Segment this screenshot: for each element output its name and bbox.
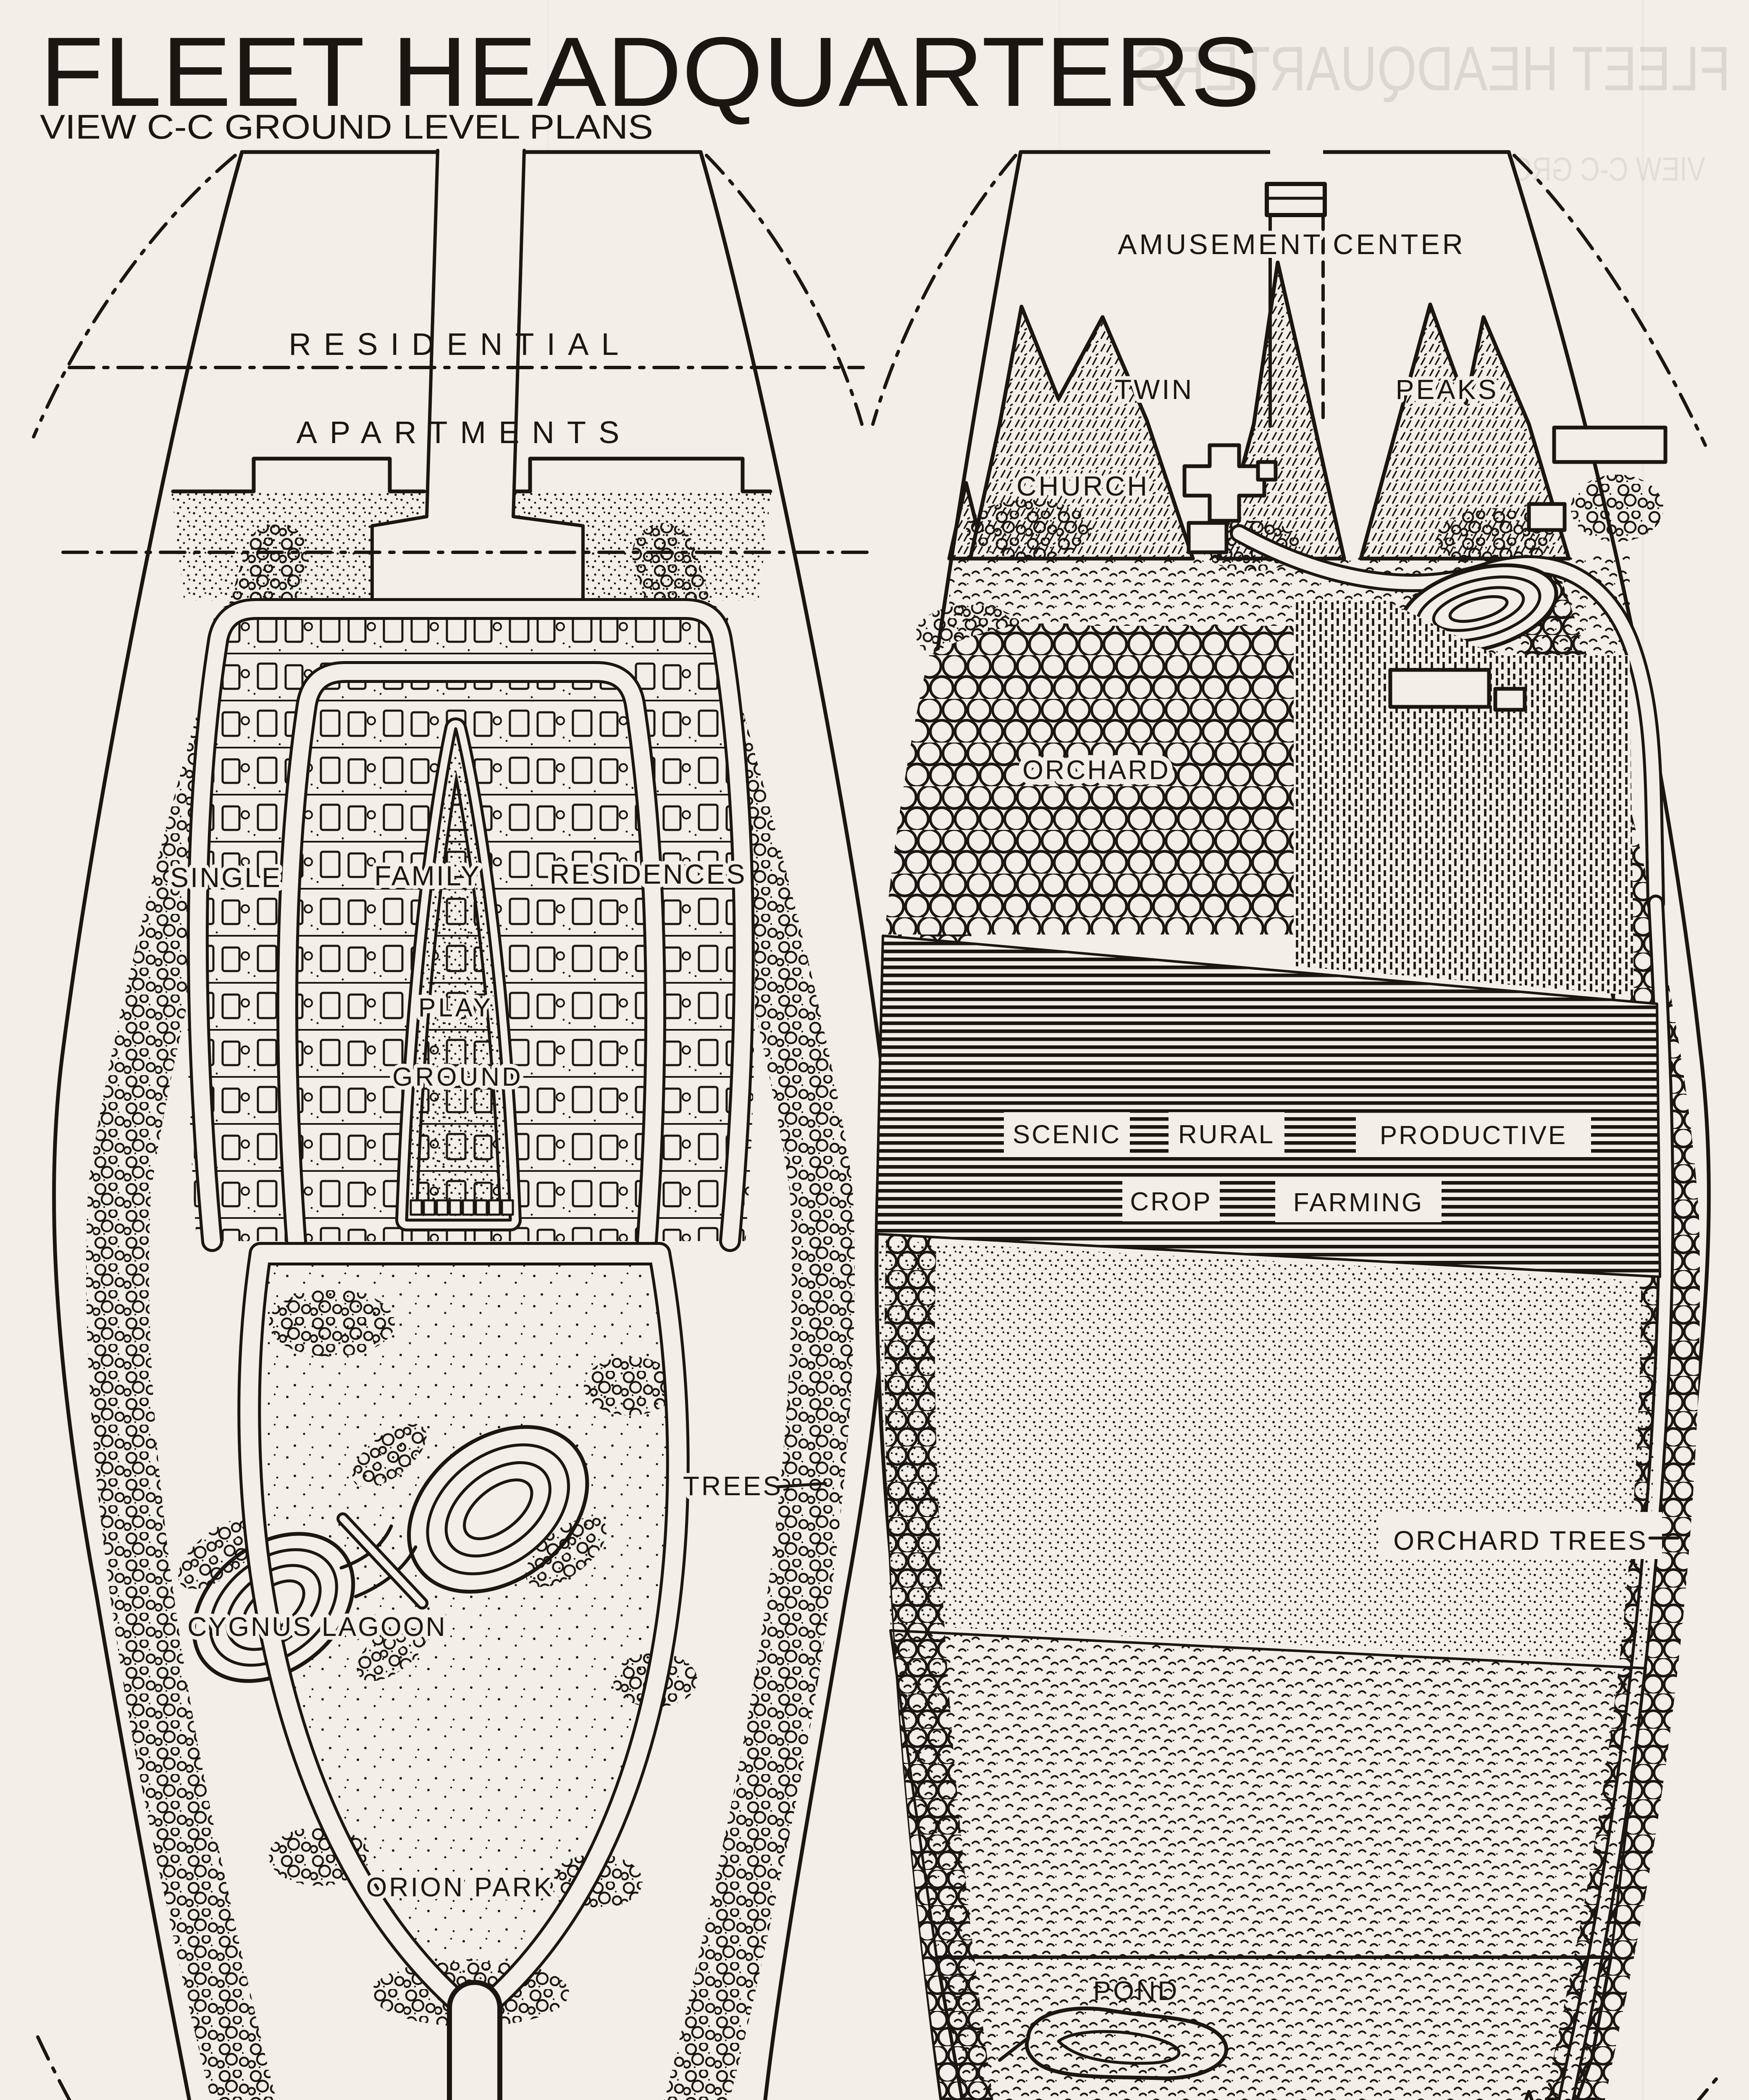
label-scenic: SCENIC [1013,1120,1121,1149]
label-crop: CROP [1130,1187,1212,1216]
label-farming: FARMING [1293,1188,1423,1217]
label-bay4-amusement-left: AMUSEMENT CENTER [1118,228,1465,260]
label-apartments: APARTMENTS [297,415,632,450]
bay4-forest [937,1957,1611,2100]
orchard-trees-field [876,1240,1660,1662]
blueprint-page: FLEET HEADQUARTERS VIEW C-C GROUND LEVEL… [0,0,1749,2100]
label-play: PLAY [418,993,493,1022]
label-residential: RESIDENTIAL [289,327,631,362]
label-residences: RESIDENCES [549,858,746,890]
label-peaks: PEAKS [1395,374,1498,405]
playground-plots [411,1200,513,1215]
plan-drawing: FLEET HEADQUARTERS VIEW C-C GROUND LEVEL… [0,0,1749,2100]
bay4-corridor-gap [1270,147,1323,156]
bay3: PLAY GROUND SINGLE FAMILY RESIDENCES [54,149,889,2100]
page-subtitle: VIEW C-C GROUND LEVEL PLANS [40,108,653,146]
crop-rows-field [1294,601,1634,995]
label-trees: TREES [683,1471,783,1501]
title-block: FLEET HEADQUARTERS VIEW C-C GROUND LEVEL… [40,16,1260,146]
label-church: CHURCH [1016,470,1149,501]
label-rural: RURAL [1178,1120,1275,1149]
label-family: FAMILY [374,860,481,891]
label-cygnus-lagoon: CYGNUS LAGOON [187,1612,446,1642]
label-ground: GROUND [392,1063,523,1092]
label-orchard: ORCHARD [1022,755,1170,785]
label-orchard-trees: ORCHARD TREES [1393,1525,1648,1556]
label-productive: PRODUCTIVE [1380,1121,1567,1150]
bay4: AMUSEMENT CENTER TWIN PEAKS CHURCH ORCHA… [876,147,1709,2100]
label-twin: TWIN [1115,374,1194,405]
label-single: SINGLE [170,862,282,893]
scrub-field [890,1630,1646,1957]
label-orion-park: ORION PARK [366,1872,554,1902]
